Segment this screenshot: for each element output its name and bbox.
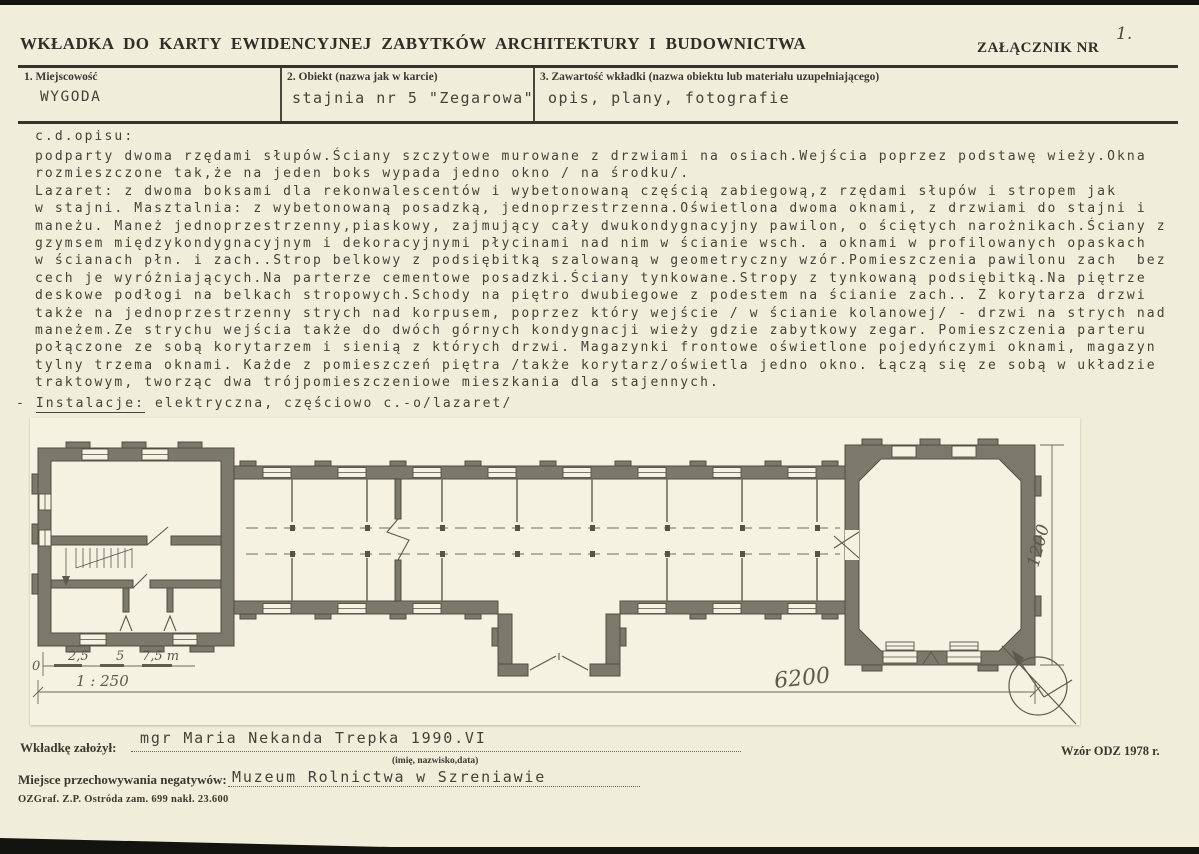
right-pavilion-walls [845,445,1035,665]
scan-edge-top [0,0,1199,5]
description-heading: c.d.opisu: [35,129,134,144]
installations-line: - Instalacje: elektryczna, częściowo c.-… [16,396,512,411]
page-title: WKŁADKA DO KARTY EWIDENCYJNEJ ZABYTKÓW A… [20,34,806,54]
installations-text: elektryczna, częściowo c.-o/lazaret/ [145,396,512,411]
scale-tick-3: 7,5 m [142,649,179,664]
field-locality-label: 1. Miejscowość [24,71,97,83]
field-contents-value: opis, plany, fotografie [548,89,790,107]
field-object-value: stajnia nr 5 "Zegarowa" [292,89,534,107]
header-rule [18,65,1178,68]
scale-bar: 0 2,5 5 7,5 m 1 : 250 [32,649,195,690]
scale-tick-1: 2,5 [67,649,89,664]
form-version: Wzór ODZ 1978 r. [1061,744,1160,759]
dimension-length-line [33,680,1040,704]
print-shop-info: OZGraf. Z.P. Ostróda zam. 699 nakł. 23.6… [18,794,229,805]
window-mullions [45,455,981,658]
scale-zero: 0 [32,659,40,674]
field-object-label: 2. Obiekt (nazwa jak w karcie) [287,71,438,83]
created-by-line [131,737,741,752]
door-swings [120,519,939,670]
installations-dash: - [16,396,26,411]
negatives-label: Miejsce przechowywania negatywów: [18,772,227,788]
scan-edge-bottom [0,847,1199,854]
floor-plan-figure: 6200 1200 0 2,5 5 7,5 m 1 : 250 [30,418,1080,725]
scale-tick-2: 5 [116,649,124,664]
field-contents-label: 3. Zawartość wkładki (nazwa obiektu lub … [540,71,879,83]
description-text: podparty dwoma rzędami słupów.Ściany szc… [35,148,1167,392]
installations-label: Instalacje: [36,396,145,413]
field-locality-value: WYGODA [40,89,101,105]
fields-bottom-rule [18,121,1178,124]
left-pavilion-walls [38,448,234,646]
dimension-length-value: 6200 [773,663,831,694]
staircase [66,548,132,582]
column-marks [290,525,820,557]
attachment-label: ZAŁĄCZNIK NR [977,40,1099,57]
scale-ratio: 1 : 250 [76,672,129,690]
north-arrow-icon [1002,646,1076,724]
field-divider [280,68,282,121]
attachment-number: 1. [1116,24,1132,44]
stall-partitions [292,479,817,601]
created-by-label: Wkładkę założył: [20,740,116,756]
negatives-line [228,772,640,787]
floor-plan-drawing: 6200 1200 0 2,5 5 7,5 m 1 : 250 [30,418,1080,725]
stable-top-wall [234,466,845,479]
record-card-scan: WKŁADKA DO KARTY EWIDENCYJNEJ ZABYTKÓW A… [0,0,1199,854]
column-axes [246,528,840,554]
created-by-hint: (imię, nazwisko,data) [392,756,478,766]
